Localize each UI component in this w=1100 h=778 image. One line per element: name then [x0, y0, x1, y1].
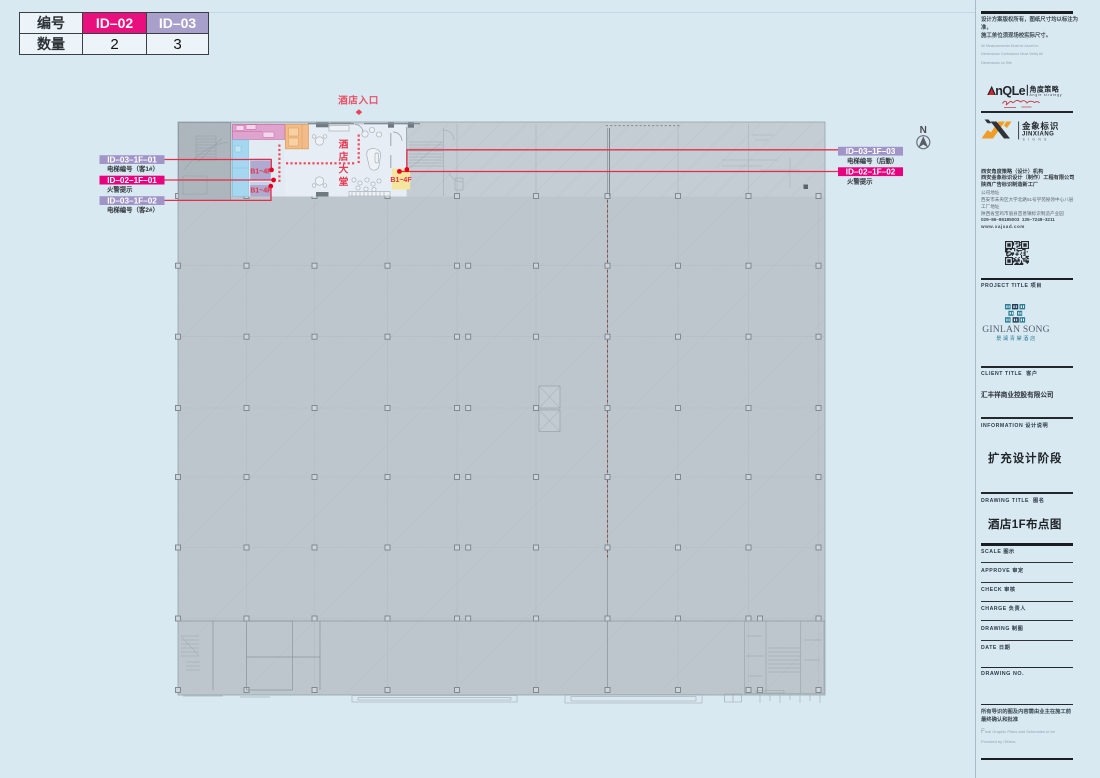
svg-text:nQLe: nQLe	[995, 84, 1025, 98]
svg-text:N: N	[920, 125, 927, 136]
svg-text:B1~4F: B1~4F	[390, 177, 412, 184]
svg-text:ID–02–1F–01: ID–02–1F–01	[107, 176, 157, 185]
svg-text:大: 大	[339, 163, 349, 176]
svg-text:电梯编号（后勤）: 电梯编号（后勤）	[847, 156, 898, 165]
svg-text:ID–03–1F–01: ID–03–1F–01	[107, 155, 157, 164]
svg-text:酒店入口: 酒店入口	[338, 95, 379, 107]
svg-text:火警提示: 火警提示	[107, 185, 133, 194]
svg-text:火警提示: 火警提示	[847, 176, 873, 185]
svg-text:B1~4F: B1~4F	[250, 188, 272, 195]
svg-text:B1~4F: B1~4F	[250, 168, 272, 175]
svg-text:电梯编号（客2#）: 电梯编号（客2#）	[107, 205, 159, 214]
svg-text:店: 店	[338, 150, 349, 163]
svg-text:堂: 堂	[339, 175, 349, 188]
svg-text:电梯编号（客1#）: 电梯编号（客1#）	[107, 164, 159, 173]
svg-text:Angle strategy: Angle strategy	[1030, 93, 1063, 97]
svg-text:SIGNS: SIGNS	[1023, 137, 1050, 141]
svg-text:ID–02–1F–02: ID–02–1F–02	[846, 168, 896, 177]
svg-text:ID–03–1F–03: ID–03–1F–03	[846, 147, 896, 156]
svg-text:酒: 酒	[339, 138, 349, 151]
svg-text:ID–03–1F–02: ID–03–1F–02	[107, 196, 157, 205]
svg-text:金象标识: 金象标识	[1021, 121, 1059, 131]
